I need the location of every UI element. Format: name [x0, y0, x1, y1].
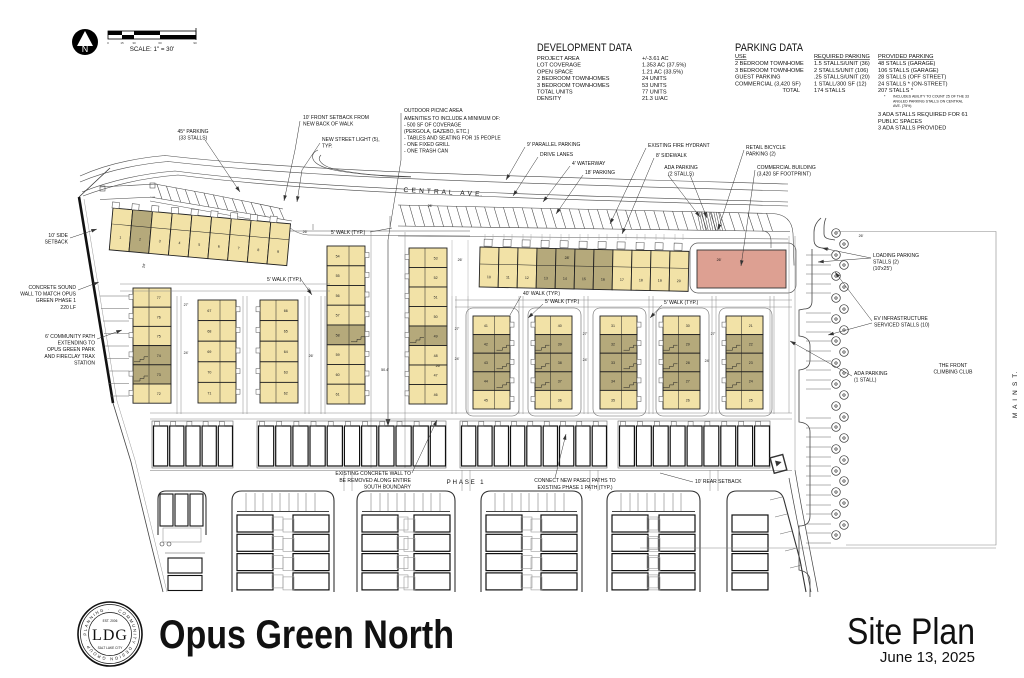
svg-text:24': 24' — [455, 357, 460, 361]
svg-text:TYP.: TYP. — [322, 144, 332, 150]
svg-text:54: 54 — [336, 255, 340, 259]
svg-text:LOT COVERAGE: LOT COVERAGE — [537, 63, 581, 69]
svg-text:13: 13 — [544, 276, 548, 280]
svg-text:2 BEDROOM TOWNHOMES: 2 BEDROOM TOWNHOMES — [537, 76, 610, 82]
svg-text:PARKING DATA: PARKING DATA — [735, 42, 804, 54]
svg-text:27: 27 — [686, 380, 690, 384]
svg-text:90: 90 — [193, 41, 197, 45]
svg-text:50: 50 — [434, 315, 438, 319]
svg-text:25': 25' — [307, 287, 311, 292]
svg-text:60: 60 — [158, 41, 162, 45]
svg-text:LOADING PARKING: LOADING PARKING — [873, 253, 919, 259]
svg-text:ADA PARKING: ADA PARKING — [854, 371, 888, 377]
svg-text:ADA PARKING: ADA PARKING — [664, 165, 698, 171]
svg-text:DRIVE LANES: DRIVE LANES — [540, 152, 574, 158]
svg-text:52: 52 — [434, 276, 438, 280]
svg-text:5' WALK (TYP.): 5' WALK (TYP.) — [331, 230, 366, 236]
svg-text:174 STALLS: 174 STALLS — [814, 88, 846, 94]
svg-text:15: 15 — [582, 277, 586, 281]
svg-text:1: 1 — [119, 236, 121, 240]
svg-text:51: 51 — [434, 295, 438, 299]
svg-text:14: 14 — [563, 277, 567, 281]
svg-text:26': 26' — [309, 354, 314, 358]
svg-text:50.4': 50.4' — [381, 368, 389, 372]
svg-text:30: 30 — [686, 324, 690, 328]
svg-text:62: 62 — [284, 391, 288, 395]
svg-text:- ONE TRASH CAN: - ONE TRASH CAN — [404, 149, 448, 155]
svg-text:N: N — [82, 44, 89, 54]
svg-text:10: 10 — [487, 275, 491, 279]
svg-text:29: 29 — [686, 343, 690, 347]
svg-text:21: 21 — [749, 324, 753, 328]
svg-text:21.3 U/AC: 21.3 U/AC — [642, 96, 668, 102]
svg-text:3 BEDROOM TOWNHOME: 3 BEDROOM TOWNHOME — [735, 68, 804, 74]
svg-text:47: 47 — [434, 373, 438, 377]
svg-text:SERVICED STALLS (10): SERVICED STALLS (10) — [874, 323, 930, 329]
svg-text:OPUS GREEN PARK: OPUS GREEN PARK — [47, 347, 96, 353]
svg-text:TOTAL UNITS: TOTAL UNITS — [537, 90, 573, 96]
svg-text:2: 2 — [139, 237, 141, 241]
svg-text:64: 64 — [284, 350, 288, 354]
svg-text:4: 4 — [178, 241, 180, 245]
svg-text:.25 STALLS/UNIT (20): .25 STALLS/UNIT (20) — [814, 75, 870, 81]
svg-text:COMMERCIAL BUILDING: COMMERCIAL BUILDING — [757, 165, 816, 171]
svg-text:18: 18 — [639, 278, 643, 282]
svg-text:AND FIRECLAY TRAX: AND FIRECLAY TRAX — [44, 354, 95, 360]
svg-text:33: 33 — [611, 361, 615, 365]
svg-text:66: 66 — [284, 309, 288, 313]
svg-text:67: 67 — [207, 309, 211, 313]
svg-text:63: 63 — [284, 371, 288, 375]
svg-text:- 500 SF OF COVERAGE: - 500 SF OF COVERAGE — [404, 123, 462, 129]
svg-text:20: 20 — [677, 279, 681, 283]
svg-text:24: 24 — [749, 380, 753, 384]
svg-text:3 BEDROOM TOWNHOMES: 3 BEDROOM TOWNHOMES — [537, 83, 610, 89]
svg-text:PUBLIC SPACES: PUBLIC SPACES — [878, 119, 922, 125]
svg-text:(2 STALLS): (2 STALLS) — [668, 172, 694, 178]
svg-text:26': 26' — [436, 364, 441, 368]
svg-text:PROVIDED PARKING: PROVIDED PARKING — [878, 54, 934, 60]
svg-text:24': 24' — [583, 358, 588, 362]
svg-text:32: 32 — [611, 343, 615, 347]
svg-text:PARKING (2): PARKING (2) — [746, 152, 776, 158]
svg-text:STALLS (2): STALLS (2) — [873, 260, 899, 266]
svg-text:18' PARKING: 18' PARKING — [585, 170, 615, 176]
svg-text:EXISTING CONCRETE WALL TO: EXISTING CONCRETE WALL TO — [335, 471, 411, 477]
svg-text:ANGLED PARKING STALLS ON CENTR: ANGLED PARKING STALLS ON CENTRAL — [893, 99, 963, 103]
svg-text:73: 73 — [157, 373, 161, 377]
svg-text:SETBACK: SETBACK — [45, 239, 69, 245]
svg-text:10' FRONT SETBACK FROM: 10' FRONT SETBACK FROM — [303, 115, 369, 121]
svg-text:61: 61 — [336, 393, 340, 397]
svg-text:22: 22 — [749, 343, 753, 347]
svg-text:STATION: STATION — [74, 360, 95, 366]
svg-text:- ONE FIXED GRILL: - ONE FIXED GRILL — [404, 142, 450, 148]
svg-text:USE: USE — [735, 54, 747, 60]
svg-text:10' SIDE: 10' SIDE — [48, 233, 68, 239]
svg-text:41: 41 — [484, 324, 488, 328]
svg-text:5: 5 — [198, 243, 200, 247]
svg-text:49: 49 — [434, 334, 438, 338]
svg-text:12: 12 — [525, 276, 529, 280]
svg-text:EXTENDING TO: EXTENDING TO — [58, 341, 95, 347]
svg-text:35: 35 — [611, 398, 615, 402]
svg-text:6: 6 — [218, 244, 220, 248]
svg-text:1.21 AC (33.5%): 1.21 AC (33.5%) — [642, 69, 683, 75]
svg-text:48 STALLS (GARAGE): 48 STALLS (GARAGE) — [878, 61, 936, 67]
svg-text:PHASE 1: PHASE 1 — [447, 479, 486, 486]
svg-text:RETAIL BICYCLE: RETAIL BICYCLE — [746, 145, 786, 151]
svg-text:5' WALK (TYP.): 5' WALK (TYP.) — [545, 299, 580, 305]
svg-text:65: 65 — [284, 330, 288, 334]
svg-text:1.353 AC (37.5%): 1.353 AC (37.5%) — [642, 63, 686, 69]
svg-text:BE REMOVED ALONG ENTIRE: BE REMOVED ALONG ENTIRE — [339, 478, 411, 484]
svg-text:7: 7 — [237, 246, 239, 250]
svg-text:25: 25 — [749, 398, 753, 402]
svg-text:26': 26' — [303, 230, 308, 234]
svg-text:(3,420 SF FOOTPRINT): (3,420 SF FOOTPRINT) — [757, 172, 811, 178]
svg-text:LDG: LDG — [92, 627, 128, 644]
svg-text:EXISTING PHASE 1 PATH (TYP.): EXISTING PHASE 1 PATH (TYP.) — [537, 485, 612, 491]
svg-text:CONCRETE SOUND: CONCRETE SOUND — [28, 285, 76, 291]
svg-text:43: 43 — [484, 361, 488, 365]
svg-text:(PERGOLA, GAZEBO, ETC.): (PERGOLA, GAZEBO, ETC.) — [404, 129, 470, 135]
svg-text:EXISTING FIRE HYDRANT: EXISTING FIRE HYDRANT — [648, 143, 710, 149]
svg-text:58: 58 — [336, 334, 340, 338]
svg-text:+/-3.61 AC: +/-3.61 AC — [642, 56, 669, 62]
svg-text:COMMERCIAL (3,420 SF): COMMERCIAL (3,420 SF) — [735, 81, 801, 87]
svg-text:5' WALK (TYP.): 5' WALK (TYP.) — [267, 277, 302, 283]
svg-text:3 ADA STALLS PROVIDED: 3 ADA STALLS PROVIDED — [878, 126, 946, 132]
svg-text:SOUTH BOUNDARY: SOUTH BOUNDARY — [364, 485, 412, 491]
svg-text:2 BEDROOM TOWNHOME: 2 BEDROOM TOWNHOME — [735, 61, 804, 67]
svg-text:36: 36 — [558, 398, 562, 402]
svg-text:39: 39 — [558, 343, 562, 347]
svg-text:3: 3 — [159, 239, 161, 243]
svg-text:24 UNITS: 24 UNITS — [642, 76, 667, 82]
svg-text:26': 26' — [859, 234, 864, 238]
svg-text:THE FRONT: THE FRONT — [939, 363, 968, 369]
svg-text:220 LF: 220 LF — [60, 305, 76, 311]
svg-text:23: 23 — [749, 361, 753, 365]
svg-text:53 UNITS: 53 UNITS — [642, 83, 667, 89]
svg-text:59: 59 — [336, 353, 340, 357]
svg-text:72: 72 — [157, 392, 161, 396]
svg-text:1.5 STALLS/UNIT (36): 1.5 STALLS/UNIT (36) — [814, 61, 870, 67]
svg-text:106 STALLS (GARAGE): 106 STALLS (GARAGE) — [878, 68, 939, 74]
svg-text:16: 16 — [601, 278, 605, 282]
svg-text:AVE. (75%): AVE. (75%) — [893, 104, 912, 108]
svg-text:9: 9 — [277, 250, 279, 254]
svg-text:27': 27' — [184, 303, 189, 307]
svg-text:45° PARKING: 45° PARKING — [177, 129, 208, 135]
svg-text:40: 40 — [558, 324, 562, 328]
svg-text:Site Plan: Site Plan — [847, 611, 975, 652]
svg-text:71: 71 — [207, 391, 211, 395]
svg-text:NEW STREET LIGHT (5),: NEW STREET LIGHT (5), — [322, 137, 380, 143]
svg-text:15: 15 — [120, 41, 124, 45]
svg-text:9' PARALLEL PARKING: 9' PARALLEL PARKING — [527, 142, 580, 148]
svg-text:45: 45 — [484, 398, 488, 402]
svg-text:3 ADA STALLS REQUIRED FOR 61: 3 ADA STALLS REQUIRED FOR 61 — [878, 112, 968, 118]
svg-text:75: 75 — [157, 335, 161, 339]
svg-text:46: 46 — [434, 393, 438, 397]
svg-text:June 13, 2025: June 13, 2025 — [880, 649, 975, 666]
svg-text:53: 53 — [434, 256, 438, 260]
svg-text:76: 76 — [157, 315, 161, 319]
svg-text:19: 19 — [658, 279, 662, 283]
svg-text:42: 42 — [484, 343, 488, 347]
svg-text:2 STALLS/UNIT (106): 2 STALLS/UNIT (106) — [814, 68, 868, 74]
svg-text:26: 26 — [686, 398, 690, 402]
svg-text:EV INFRASTRUCTURE: EV INFRASTRUCTURE — [874, 316, 929, 322]
svg-text:74: 74 — [157, 354, 161, 358]
svg-text:60: 60 — [336, 373, 340, 377]
svg-text:(33 STALLS): (33 STALLS) — [179, 136, 208, 142]
svg-text:31: 31 — [611, 324, 615, 328]
svg-text:69: 69 — [207, 350, 211, 354]
svg-text:77: 77 — [157, 296, 161, 300]
svg-text:REQUIRED PARKING: REQUIRED PARKING — [814, 54, 870, 60]
svg-text:30: 30 — [132, 41, 136, 45]
svg-text:AMENITIES TO INCLUDE A MINIMUM: AMENITIES TO INCLUDE A MINIMUM OF: — [404, 116, 500, 122]
svg-text:OUTDOOR PICNIC AREA: OUTDOOR PICNIC AREA — [404, 108, 463, 114]
svg-text:28': 28' — [565, 256, 570, 260]
svg-text:70: 70 — [207, 371, 211, 375]
svg-text:DENSITY: DENSITY — [537, 96, 562, 102]
svg-text:77 UNITS: 77 UNITS — [642, 90, 667, 96]
svg-text:24': 24' — [184, 351, 189, 355]
svg-text:OPEN SPACE: OPEN SPACE — [537, 69, 573, 75]
svg-text:55: 55 — [336, 274, 340, 278]
svg-text:PROJECT AREA: PROJECT AREA — [537, 56, 580, 62]
svg-text:(1 STALL): (1 STALL) — [854, 378, 877, 384]
svg-text:24': 24' — [705, 359, 710, 363]
svg-text:207 STALLS *: 207 STALLS * — [878, 88, 914, 94]
svg-text:- TABLES AND SEATING FOR 15 PE: - TABLES AND SEATING FOR 15 PEOPLE — [404, 136, 501, 142]
svg-text:Opus Green North: Opus Green North — [159, 613, 454, 657]
svg-text:NEW BACK OF WALK: NEW BACK OF WALK — [303, 122, 354, 128]
svg-text:8: 8 — [257, 248, 259, 252]
svg-text:CONNECT NEW PASEO PATHS TO: CONNECT NEW PASEO PATHS TO — [534, 478, 616, 484]
svg-text:26': 26' — [428, 204, 433, 208]
svg-text:68: 68 — [207, 330, 211, 334]
svg-text:17: 17 — [620, 278, 624, 282]
svg-text:GREEN PHASE 1: GREEN PHASE 1 — [36, 298, 77, 304]
svg-text:5' WALK (TYP.): 5' WALK (TYP.) — [664, 300, 699, 306]
svg-text:6' COMMUNITY PATH: 6' COMMUNITY PATH — [45, 334, 95, 340]
svg-text:4' WATERWAY: 4' WATERWAY — [572, 161, 606, 167]
svg-text:27': 27' — [711, 332, 716, 336]
svg-text:28 STALLS (OFF STREET): 28 STALLS (OFF STREET) — [878, 75, 946, 81]
svg-text:CLIMBING CLUB: CLIMBING CLUB — [934, 370, 974, 376]
svg-text:TOTAL: TOTAL — [782, 88, 800, 94]
svg-text:34: 34 — [611, 380, 615, 384]
svg-text:11: 11 — [506, 276, 510, 280]
svg-text:INCLUDES ABILITY TO COUNT 25 O: INCLUDES ABILITY TO COUNT 25 OF THE 33 — [893, 95, 969, 99]
svg-text:27': 27' — [583, 332, 588, 336]
svg-text:48: 48 — [434, 354, 438, 358]
svg-text:EST. 2006: EST. 2006 — [103, 619, 118, 623]
svg-text:40' WALK (TYP.): 40' WALK (TYP.) — [523, 291, 560, 297]
svg-text:37: 37 — [558, 380, 562, 384]
svg-text:GUEST PARKING: GUEST PARKING — [735, 75, 780, 81]
svg-text:SCALE: 1" = 30': SCALE: 1" = 30' — [130, 46, 174, 53]
svg-text:8' SIDEWALK: 8' SIDEWALK — [656, 153, 687, 159]
svg-text:27': 27' — [455, 327, 460, 331]
svg-text:28: 28 — [686, 361, 690, 365]
svg-text:1 STALL/300 SF (12): 1 STALL/300 SF (12) — [814, 81, 867, 87]
svg-text:WALL TO MATCH OPUS: WALL TO MATCH OPUS — [20, 292, 76, 298]
svg-text:SALT LAKE CITY: SALT LAKE CITY — [98, 646, 124, 650]
svg-text:(10'x25'): (10'x25') — [873, 266, 892, 272]
svg-text:38: 38 — [558, 361, 562, 365]
svg-text:44: 44 — [484, 380, 488, 384]
svg-text:26': 26' — [458, 258, 463, 262]
svg-text:26': 26' — [717, 258, 722, 262]
svg-text:24 STALLS * (ON-STREET): 24 STALLS * (ON-STREET) — [878, 81, 948, 87]
svg-text:10' REAR SETBACK: 10' REAR SETBACK — [695, 479, 742, 485]
svg-text:57: 57 — [336, 314, 340, 318]
svg-text:M A I N S T.: M A I N S T. — [1012, 370, 1019, 418]
svg-text:56: 56 — [336, 294, 340, 298]
svg-text:DEVELOPMENT DATA: DEVELOPMENT DATA — [537, 42, 633, 54]
